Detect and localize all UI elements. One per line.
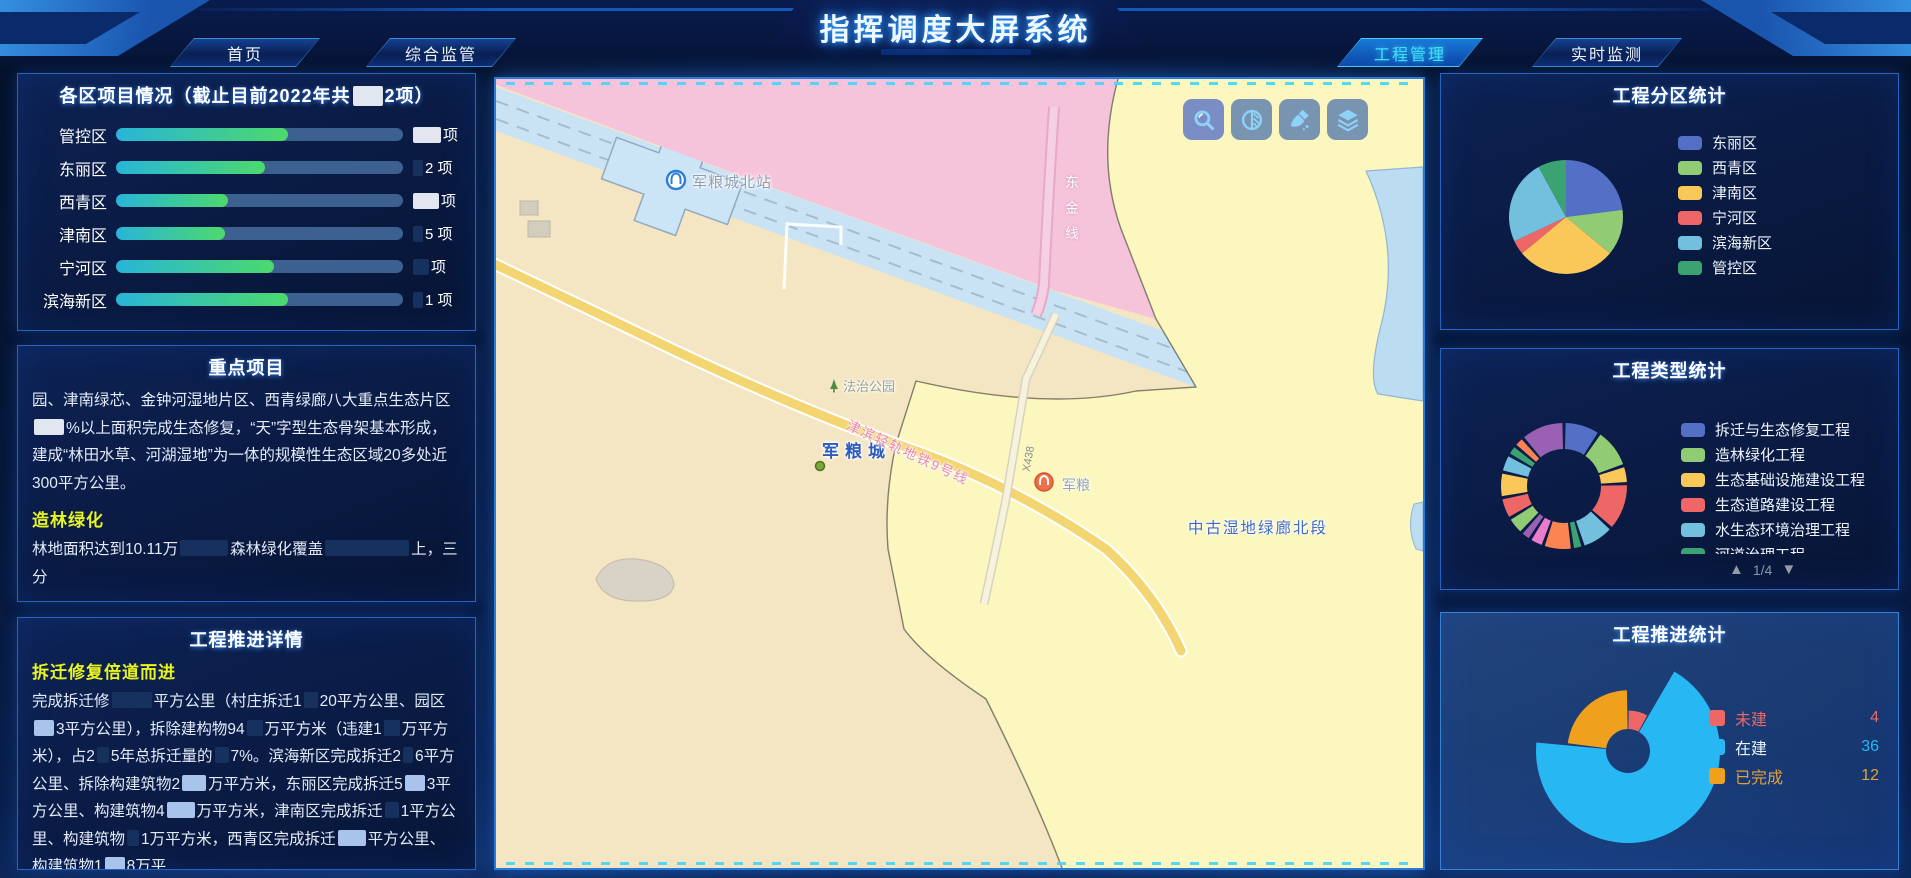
chart-svg	[1498, 420, 1630, 552]
legend-swatch	[1681, 473, 1705, 487]
legend-item[interactable]: 河道治理工程	[1681, 542, 1865, 554]
clean-tool-button[interactable]	[1279, 99, 1320, 140]
legend-label: 管控区	[1712, 257, 1757, 278]
type-donut-legend: 拆迁与生态修复工程造林绿化工程生态基础设施建设工程生态道路建设工程水生态环境治理…	[1681, 417, 1865, 554]
text-segment: 林地面积达到10.11万	[32, 541, 178, 558]
text-segment: 完成拆迁修	[32, 693, 110, 710]
map-label-station-north: 军粮城北站	[692, 171, 772, 192]
bar-label: 东丽区	[22, 156, 116, 180]
bar-track	[116, 194, 403, 207]
type-donut-chart	[1498, 420, 1630, 557]
legend-swatch	[1709, 768, 1725, 784]
panel-push-stats-title: 工程推进统计	[1441, 613, 1898, 651]
bar-value: 2 项	[403, 157, 469, 178]
bar-row: 津南区5 项	[22, 217, 469, 250]
text-segment: 万平方米，东丽区完成拆迁5	[208, 776, 403, 793]
bar-track	[116, 128, 403, 141]
legend-item[interactable]: 水生态环境治理工程	[1681, 517, 1865, 542]
redaction-box	[413, 226, 423, 242]
legend-pager: ▲ 1/4 ▼	[1729, 561, 1796, 578]
pie-slice	[1566, 160, 1623, 217]
bar-fill	[116, 128, 288, 141]
redaction-box	[304, 692, 318, 708]
contrast-tool-button[interactable]	[1231, 99, 1272, 140]
legend-label: 已完成	[1735, 764, 1783, 788]
legend-label: 未建	[1735, 706, 1767, 730]
redaction-box	[384, 720, 400, 736]
redaction-box	[413, 259, 429, 275]
text-segment: 20平方公里、园区	[320, 693, 446, 710]
panel-progress-detail: 工程推进详情 拆迁修复倍道而进 完成拆迁修平方公里（村庄拆迁120平方公里、园区…	[17, 617, 476, 870]
text-segment: 项	[441, 190, 456, 211]
redaction-box	[405, 775, 425, 791]
redaction-box	[97, 747, 109, 763]
legend-item[interactable]: 滨海新区	[1678, 230, 1772, 255]
redaction-box	[338, 830, 366, 846]
panel-progress-detail-title: 工程推进详情	[18, 618, 475, 656]
legend-label: 津南区	[1712, 182, 1757, 203]
legend-label: 河道治理工程	[1715, 544, 1805, 554]
text-segment: 万平方米，津南区完成拆迁	[197, 803, 383, 820]
legend-swatch	[1678, 161, 1702, 175]
redaction-box	[413, 292, 423, 308]
legend-label: 拆迁与生态修复工程	[1715, 419, 1850, 440]
legend-item[interactable]: 造林绿化工程	[1681, 442, 1865, 467]
legend-swatch	[1681, 523, 1705, 537]
key-projects-subhead: 造林绿化	[18, 497, 475, 533]
bar-track	[116, 293, 403, 306]
pie-slice	[1501, 474, 1528, 496]
zoom-tool-button[interactable]	[1183, 99, 1224, 140]
panel-push-stats: 工程推进统计 未建4在建36已完成12	[1440, 612, 1899, 870]
bar-value: 项	[403, 256, 469, 277]
progress-detail-paragraph: 完成拆迁修平方公里（村庄拆迁120平方公里、园区3平方公里），拆除建构物94万平…	[18, 685, 475, 870]
redaction-box	[325, 540, 409, 556]
panel-type-stats-title: 工程类型统计	[1441, 349, 1898, 387]
redaction-box	[112, 692, 152, 708]
key-projects-paragraph: 园、津南绿芯、金钟河湿地片区、西青绿廊八大重点生态片区%以上面积完成生态修复，“…	[18, 384, 475, 497]
redaction-box	[182, 775, 206, 791]
legend-item[interactable]: 拆迁与生态修复工程	[1681, 417, 1865, 442]
legend-label: 造林绿化工程	[1715, 444, 1805, 465]
tab-supervision-label[interactable]: 综合监管	[367, 39, 515, 66]
bar-label: 滨海新区	[22, 288, 116, 312]
push-rose-legend: 未建4在建36已完成12	[1709, 703, 1879, 790]
legend-value: 12	[1861, 767, 1879, 785]
panel-type-stats: 工程类型统计 拆迁与生态修复工程造林绿化工程生态基础设施建设工程生态道路建设工程…	[1440, 348, 1899, 590]
bar-track	[116, 227, 403, 240]
tab-home[interactable]: 首页	[170, 38, 320, 67]
push-rose-chart	[1528, 651, 1728, 856]
legend-item[interactable]: 生态道路建设工程	[1681, 492, 1865, 517]
legend-item[interactable]: 在建36	[1709, 732, 1879, 761]
legend-value: 36	[1861, 738, 1879, 756]
legend-item[interactable]: 西青区	[1678, 155, 1772, 180]
panel-zone-stats: 工程分区统计 东丽区西青区津南区宁河区滨海新区管控区	[1440, 73, 1899, 330]
zone-pie-chart	[1504, 155, 1628, 284]
legend-item[interactable]: 宁河区	[1678, 205, 1772, 230]
pie-slice	[1568, 690, 1628, 748]
legend-swatch	[1681, 448, 1705, 462]
bar-label: 管控区	[22, 123, 116, 147]
page-down-icon[interactable]: ▼	[1781, 561, 1796, 578]
map-label-park: 法治公园	[843, 376, 895, 395]
bar-row: 滨海新区1 项	[22, 283, 469, 316]
page-up-icon[interactable]: ▲	[1729, 561, 1744, 578]
text-segment: 1 项	[425, 289, 453, 310]
legend-swatch	[1678, 236, 1702, 250]
progress-detail-subhead: 拆迁修复倍道而进	[18, 656, 475, 685]
tab-engineering-label[interactable]: 工程管理	[1338, 39, 1482, 66]
legend-swatch	[1709, 739, 1725, 755]
redaction-box	[180, 540, 228, 556]
map-building	[520, 201, 538, 215]
redaction-box	[413, 160, 423, 176]
bar-fill	[116, 194, 228, 207]
redaction-box	[215, 747, 229, 763]
panel-key-projects-title: 重点项目	[18, 346, 475, 384]
text-segment: 3平方公里），拆除建构物94	[56, 721, 245, 738]
redaction-box	[413, 127, 441, 143]
bar-row: 管控区项	[22, 118, 469, 151]
bar-row: 宁河区项	[22, 250, 469, 283]
tab-monitoring[interactable]: 实时监测	[1532, 38, 1682, 67]
legend-swatch	[1678, 261, 1702, 275]
bar-value: 5 项	[403, 223, 469, 244]
tab-engineering[interactable]: 工程管理	[1337, 38, 1483, 67]
map-label-station-right: 军粮	[1062, 475, 1090, 495]
bar-row: 西青区项	[22, 184, 469, 217]
legend-label: 生态道路建设工程	[1715, 494, 1835, 515]
text-segment: 2项）	[385, 86, 434, 106]
text-segment: 5 项	[425, 223, 453, 244]
tab-home-label[interactable]: 首页	[171, 39, 319, 66]
dashboard-root: 指挥调度大屏系统 首页 综合监管 工程管理 实时监测 各区项目情况（截止目前20…	[0, 0, 1911, 878]
contrast-circle-icon	[1239, 107, 1265, 133]
metro-station-icon	[667, 171, 685, 189]
text-segment: 各区项目情况（截止目前2022年共	[59, 86, 350, 106]
bar-fill	[116, 260, 274, 273]
legend-swatch	[1678, 211, 1702, 225]
bar-value: 项	[403, 190, 469, 211]
layers-tool-button[interactable]	[1327, 99, 1368, 140]
legend-swatch	[1681, 548, 1705, 555]
map-label-corridor: 中古湿地绿廊北段	[1188, 516, 1328, 538]
text-segment: 项	[431, 256, 446, 277]
text-segment: 平方公里（村庄拆迁1	[154, 693, 302, 710]
redaction-box	[34, 419, 64, 435]
key-projects-paragraph-2: 林地面积达到10.11万森林绿化覆盖上，三分	[18, 533, 475, 591]
legend-value: 4	[1870, 709, 1879, 727]
chart-svg	[1504, 155, 1628, 279]
legend-label: 滨海新区	[1712, 232, 1772, 253]
bar-fill	[116, 293, 288, 306]
pie-slice	[1536, 672, 1720, 843]
redaction-box	[105, 857, 125, 870]
redaction-box	[353, 86, 383, 106]
legend-swatch	[1678, 186, 1702, 200]
title-underline	[881, 49, 1031, 55]
redaction-box	[403, 747, 413, 763]
page-title: 指挥调度大屏系统	[820, 5, 1092, 49]
map-label-east-line: 东金线	[1060, 175, 1080, 252]
text-segment: 8万平	[127, 858, 167, 870]
bar-label: 津南区	[22, 222, 116, 246]
redaction-box	[34, 720, 54, 736]
text-segment: 1万平方米，西青区完成拆迁	[141, 831, 336, 848]
map-view[interactable]: 军粮城北站 法治公园 军粮城 津滨轻轨地铁9号线 X438 东金线 中古湿地绿廊…	[494, 77, 1425, 870]
map-frame-dash-bottom	[506, 862, 1413, 865]
legend-label: 东丽区	[1712, 132, 1757, 153]
bar-fill	[116, 161, 265, 174]
layers-icon	[1335, 107, 1361, 133]
bar-label: 西青区	[22, 189, 116, 213]
legend-label: 宁河区	[1712, 207, 1757, 228]
bar-label: 宁河区	[22, 255, 116, 279]
tab-monitoring-label[interactable]: 实时监测	[1533, 39, 1681, 66]
panel-zone-stats-title: 工程分区统计	[1441, 74, 1898, 112]
text-segment: 2 项	[425, 157, 453, 178]
legend-swatch	[1681, 498, 1705, 512]
legend-item[interactable]: 管控区	[1678, 255, 1772, 280]
district-bar-chart: 管控区项东丽区2 项西青区项津南区5 项宁河区项滨海新区1 项	[18, 112, 475, 316]
text-segment: 5年总拆迁量的	[111, 748, 213, 765]
map-toolbar	[1183, 99, 1368, 140]
legend-label: 在建	[1735, 735, 1767, 759]
legend-item[interactable]: 未建4	[1709, 703, 1879, 732]
legend-label: 生态基础设施建设工程	[1715, 469, 1865, 490]
map-town-dot-icon	[816, 462, 825, 471]
legend-item[interactable]: 东丽区	[1678, 130, 1772, 155]
panel-district-projects: 各区项目情况（截止目前2022年共2项） 管控区项东丽区2 项西青区项津南区5 …	[17, 73, 476, 331]
map-building	[528, 221, 550, 237]
panel-district-title: 各区项目情况（截止目前2022年共2项）	[18, 74, 475, 112]
legend-swatch	[1681, 423, 1705, 437]
bar-track	[116, 260, 403, 273]
chart-svg	[1528, 651, 1728, 851]
map-frame-dash-top	[506, 82, 1413, 85]
legend-swatch	[1678, 136, 1702, 150]
tab-supervision[interactable]: 综合监管	[366, 38, 516, 67]
broom-icon	[1287, 107, 1313, 133]
bar-value: 项	[403, 124, 469, 145]
redaction-box	[247, 720, 263, 736]
redaction-box	[413, 193, 439, 209]
legend-item[interactable]: 生态基础设施建设工程	[1681, 467, 1865, 492]
bar-value: 1 项	[403, 289, 469, 310]
magnifier-icon	[1191, 107, 1217, 133]
text-segment: 万平方米（违建1	[265, 721, 382, 738]
bar-track	[116, 161, 403, 174]
redaction-box	[167, 802, 195, 818]
bar-row: 东丽区2 项	[22, 151, 469, 184]
legend-swatch	[1709, 710, 1725, 726]
page-indicator: 1/4	[1753, 562, 1772, 578]
panel-key-projects: 重点项目 园、津南绿芯、金钟河湿地片区、西青绿廊八大重点生态片区%以上面积完成生…	[17, 345, 476, 602]
text-segment: 项	[443, 124, 458, 145]
metro-station-icon-right	[1035, 473, 1053, 491]
redaction-box	[127, 830, 139, 846]
legend-item[interactable]: 已完成12	[1709, 761, 1879, 790]
text-segment: 7%。滨海新区完成拆迁2	[231, 748, 402, 765]
text-segment: %以上面积完成生态修复，“天”字型生态骨架基本形成，建成“林田水草、河湖湿地”为…	[32, 420, 447, 492]
text-segment: 森林绿化覆盖	[230, 541, 323, 558]
redaction-box	[385, 802, 399, 818]
text-segment: 园、津南绿芯、金钟河湿地片区、西青绿廊八大重点生态片区	[32, 392, 451, 409]
bar-fill	[116, 227, 225, 240]
zone-pie-legend: 东丽区西青区津南区宁河区滨海新区管控区	[1678, 130, 1772, 280]
legend-label: 水生态环境治理工程	[1715, 519, 1850, 540]
legend-item[interactable]: 津南区	[1678, 180, 1772, 205]
legend-label: 西青区	[1712, 157, 1757, 178]
